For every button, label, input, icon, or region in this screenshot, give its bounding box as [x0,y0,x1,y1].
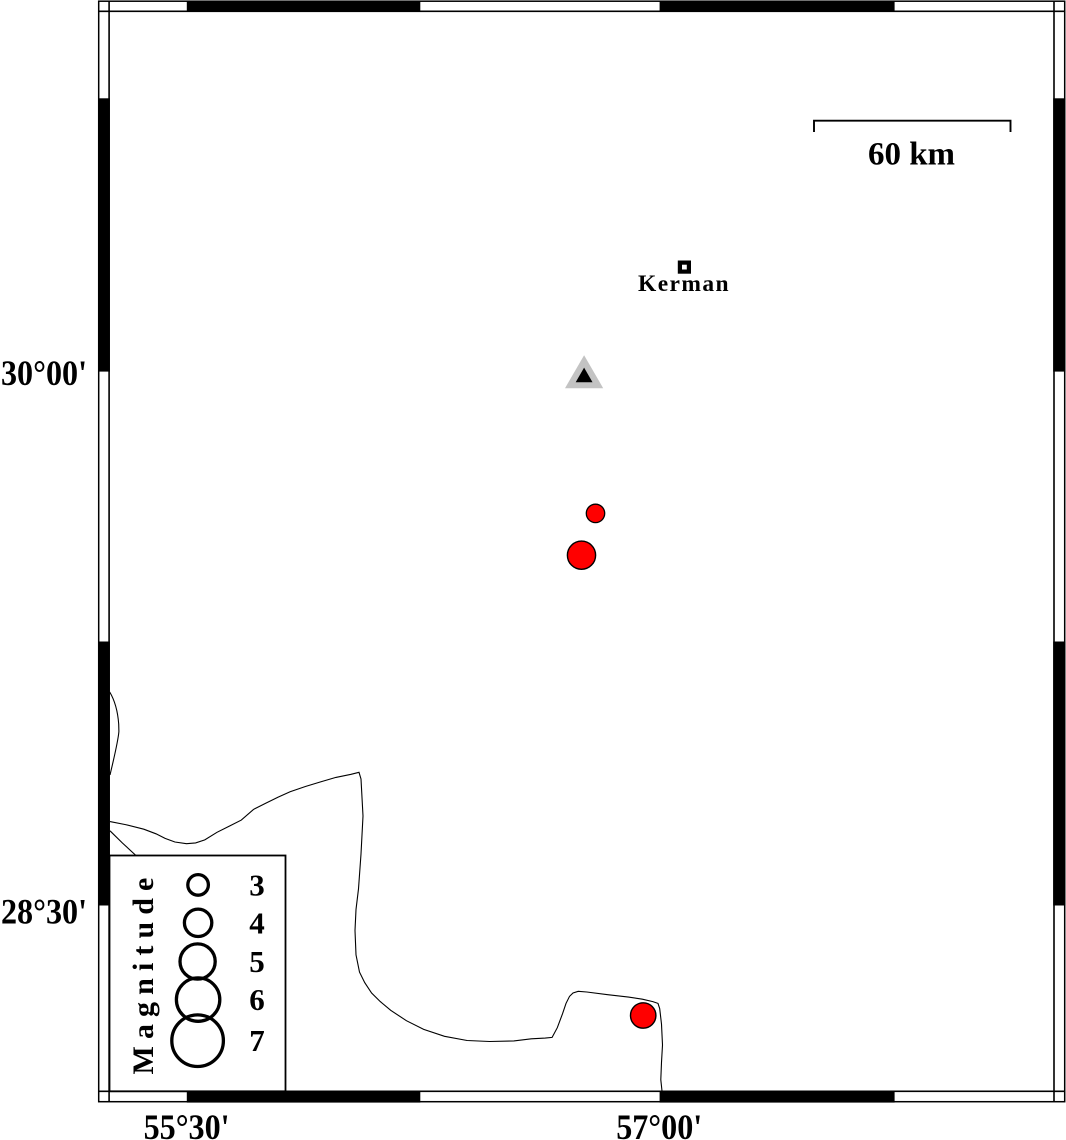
svg-text:4: 4 [249,905,265,940]
svg-text:3: 3 [249,868,265,903]
svg-text:28°30': 28°30' [1,892,87,932]
svg-text:55°30': 55°30' [144,1107,230,1140]
svg-text:60 km: 60 km [868,137,955,173]
svg-text:57°00': 57°00' [616,1107,702,1140]
svg-text:Kerman: Kerman [638,271,730,297]
svg-text:7: 7 [249,1023,265,1058]
svg-text:6: 6 [249,982,265,1017]
svg-text:5: 5 [249,944,265,979]
svg-text:Magnitude: Magnitude [127,871,160,1075]
svg-text:30°00': 30°00' [1,353,87,393]
